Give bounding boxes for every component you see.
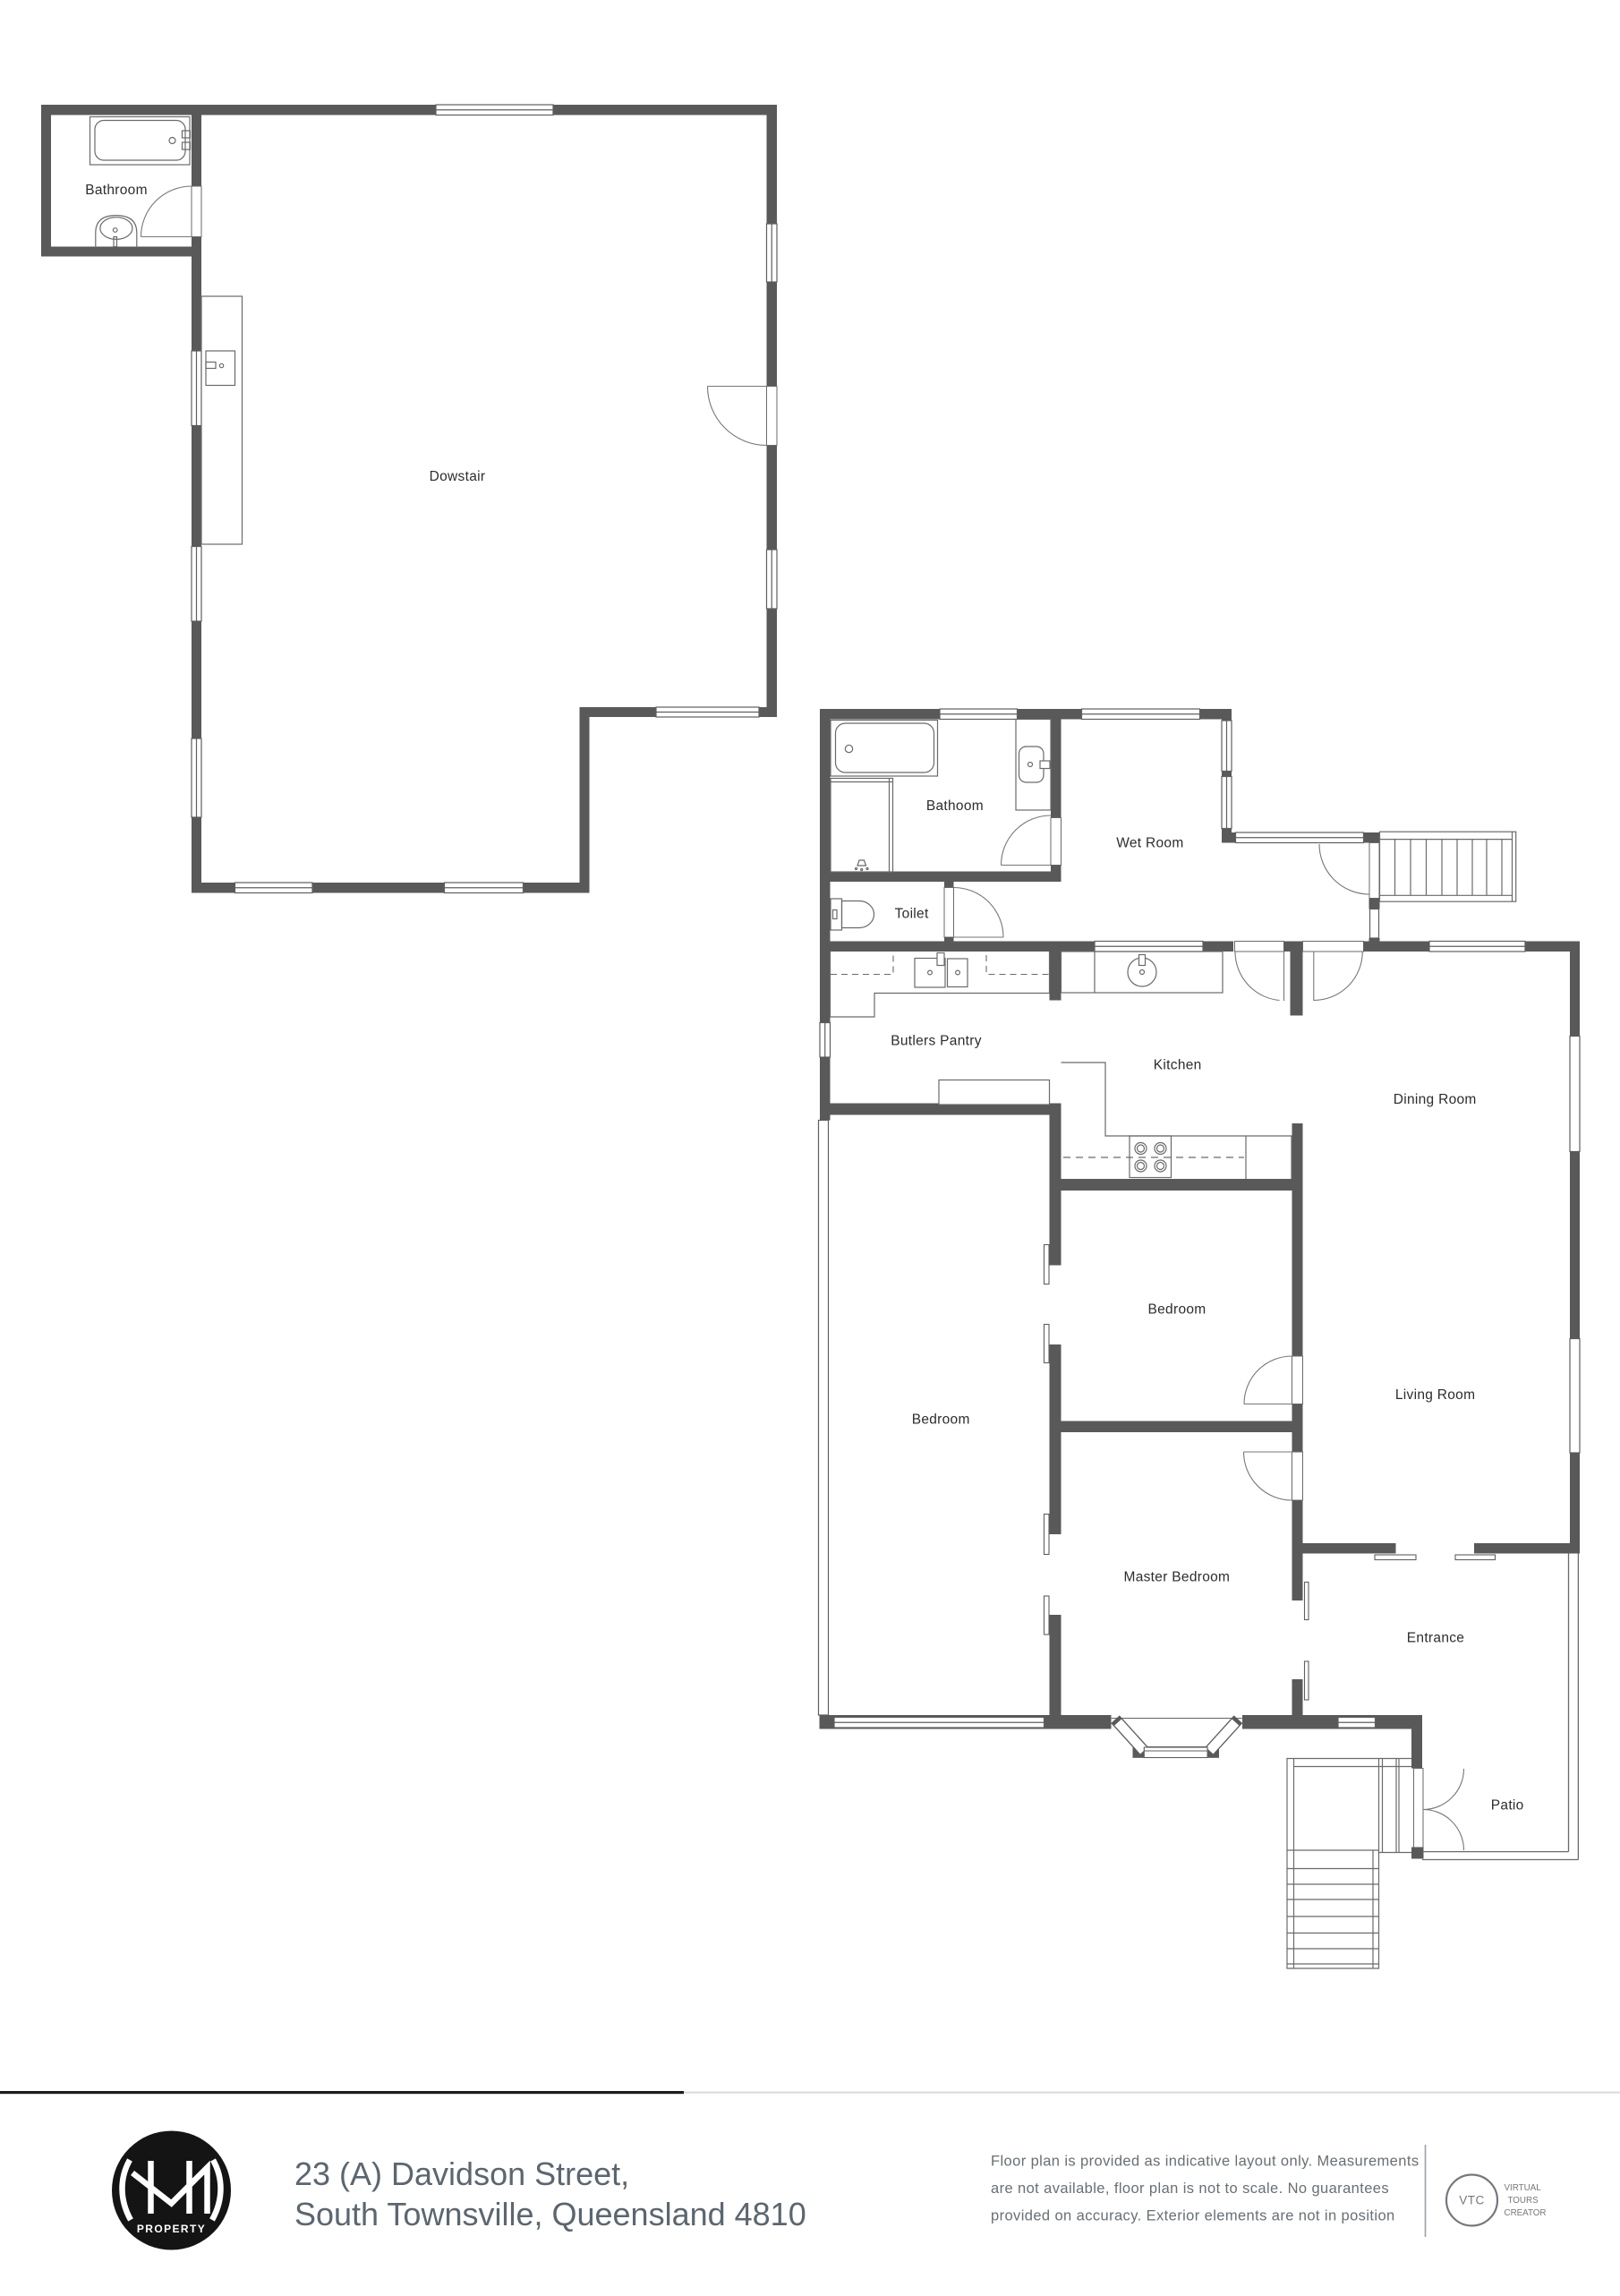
svg-text:provided on accuracy. Exterior: provided on accuracy. Exterior elements … [991, 2208, 1395, 2224]
svg-text:Wet Room: Wet Room [1116, 836, 1183, 851]
svg-text:Bathroom: Bathroom [85, 183, 148, 198]
svg-text:Toilet: Toilet [895, 907, 929, 922]
svg-text:South Townsville, Queensland 4: South Townsville, Queensland 4810 [294, 2196, 806, 2232]
svg-text:PROPERTY: PROPERTY [137, 2223, 206, 2235]
svg-text:Bathoom: Bathoom [926, 798, 984, 814]
svg-text:Butlers Pantry: Butlers Pantry [891, 1034, 982, 1049]
svg-text:CREATOR: CREATOR [1505, 2208, 1547, 2218]
svg-text:Patio: Patio [1491, 1798, 1524, 1814]
svg-text:are not available, floor plan: are not available, floor plan is not to … [991, 2181, 1389, 2197]
svg-text:TOURS: TOURS [1508, 2196, 1539, 2206]
svg-text:Master Bedroom: Master Bedroom [1124, 1570, 1231, 1585]
svg-text:Kitchen: Kitchen [1154, 1058, 1202, 1073]
svg-text:Living Room: Living Room [1395, 1387, 1475, 1403]
svg-text:Dining Room: Dining Room [1394, 1092, 1477, 1107]
svg-text:Floor plan is provided as indi: Floor plan is provided as indicative lay… [991, 2154, 1419, 2170]
svg-text:Bedroom: Bedroom [912, 1413, 970, 1428]
svg-text:Entrance: Entrance [1407, 1631, 1464, 1646]
svg-text:VIRTUAL: VIRTUAL [1505, 2183, 1542, 2193]
svg-text:Bedroom: Bedroom [1148, 1302, 1206, 1318]
svg-text:VTC: VTC [1459, 2194, 1485, 2207]
svg-text:23 (A) Davidson Street,: 23 (A) Davidson Street, [294, 2155, 629, 2192]
svg-text:Dowstair: Dowstair [430, 469, 486, 484]
